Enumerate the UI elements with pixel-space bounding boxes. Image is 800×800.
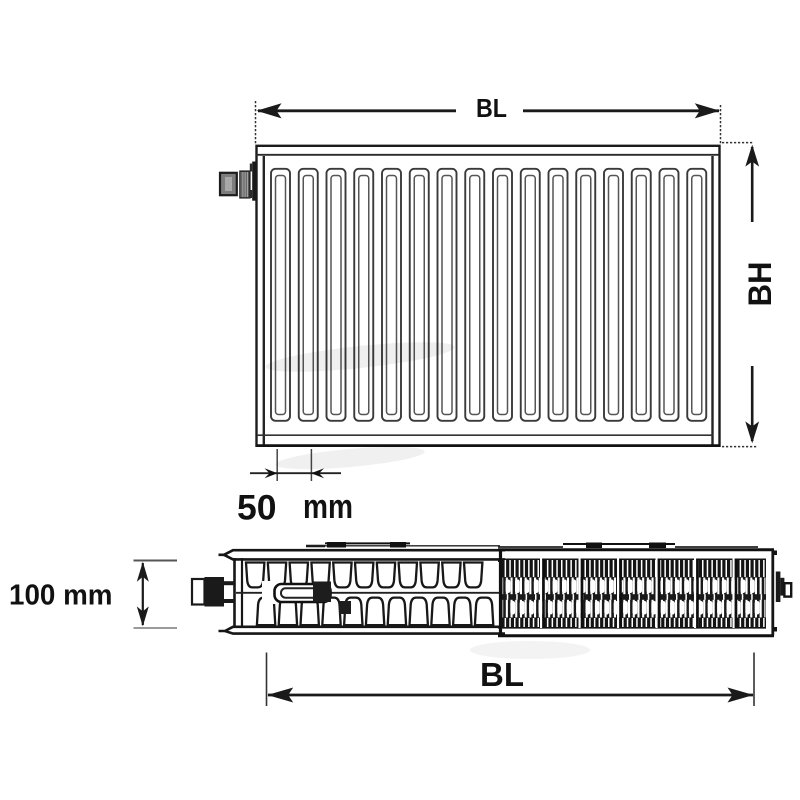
svg-text:mm: mm: [303, 488, 353, 526]
svg-text:BH: BH: [742, 262, 778, 307]
svg-text:BL: BL: [476, 93, 507, 123]
svg-text:50: 50: [237, 488, 277, 527]
svg-text:BL: BL: [480, 656, 524, 693]
svg-text:100 mm: 100 mm: [9, 580, 113, 612]
